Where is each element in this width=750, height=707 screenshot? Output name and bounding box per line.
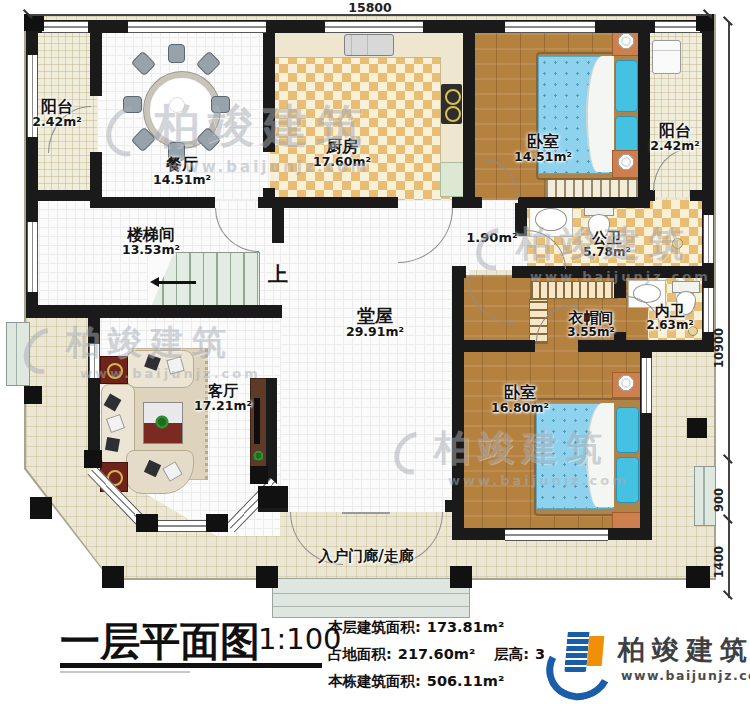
room-label-hall: 堂屋 29.91m²	[325, 306, 425, 340]
kitchen-cabinet	[440, 162, 464, 197]
room-name: 阳台	[659, 122, 691, 139]
dimension-right-main: 10900	[712, 298, 726, 368]
column	[102, 566, 124, 588]
room-area: 29.91m²	[346, 325, 404, 339]
column	[24, 386, 42, 404]
room-area: 2.63m²	[646, 319, 693, 333]
bay-post	[250, 466, 268, 484]
brand-logo: 柏竣建筑 www.baijunjz.com	[544, 624, 744, 704]
column	[30, 497, 52, 519]
room-name: 入户门廊/走廊	[318, 548, 413, 564]
dimension-line-right	[728, 22, 730, 598]
column	[256, 566, 278, 588]
window	[703, 215, 714, 263]
bath-sink	[535, 208, 567, 231]
stove-burner	[445, 89, 461, 105]
title-underline-light	[60, 671, 190, 673]
window	[641, 358, 652, 413]
brand-name: 柏竣建筑	[618, 632, 750, 668]
window	[325, 21, 423, 33]
window	[27, 222, 38, 292]
room-area: 14.51m²	[514, 150, 572, 164]
bedroom1-closet	[545, 178, 642, 199]
stairs-up-text: 上	[268, 264, 288, 286]
side-table-lamp	[107, 363, 123, 379]
info-value: 506.11m²	[427, 673, 504, 689]
window	[505, 529, 608, 541]
wall-cloak-privbath	[614, 278, 626, 298]
wall-balconyR-bottom	[648, 190, 655, 201]
room-area: 5.78m²	[583, 246, 630, 260]
dining-chair	[123, 96, 142, 113]
wall-bedroom1-bottom	[472, 197, 482, 208]
room-area: 3.55m²	[567, 326, 614, 340]
window	[89, 344, 100, 378]
info-footprint-storey: 占地面积:217.60m² 层高:3	[328, 645, 545, 664]
info-total-area: 本栋建筑面积:506.11m²	[328, 672, 504, 691]
wall-kitchen-bottom	[282, 197, 398, 208]
room-area: 2.42m²	[650, 139, 699, 153]
dining-table-center	[169, 97, 185, 113]
dimension-top: 15800	[330, 0, 410, 15]
room-name: 厨房	[326, 138, 358, 155]
wall-cloak-bottom	[464, 340, 535, 352]
wall-bedroom1-bottom	[518, 197, 650, 208]
info-floor-area: 本层建筑面积:173.81m²	[328, 618, 504, 637]
room-label-kitchen: 厨房 17.60m²	[292, 138, 392, 170]
stairs-arrow-head	[150, 277, 159, 287]
dimension-right-mid: 900	[712, 472, 726, 512]
wall-stub	[272, 197, 284, 243]
wall-hall-bottom	[445, 500, 464, 512]
rail-window-left	[6, 322, 30, 386]
room-area: 16.80m²	[491, 401, 549, 415]
sofa-pillow	[105, 437, 120, 452]
info-value: 173.81m²	[427, 619, 504, 635]
column	[258, 486, 288, 508]
entry-door-leaf	[342, 512, 390, 514]
room-name: 楼梯间	[127, 226, 175, 243]
column	[450, 566, 472, 588]
stairs-up-label: 上	[264, 264, 292, 286]
room-label-balcony-left: 阳台 2.42m²	[17, 98, 97, 130]
room-label-bedroom2: 卧室 16.80m²	[470, 384, 570, 416]
room-label-living: 客厅 17.21m²	[173, 383, 273, 414]
room-name: 阳台	[41, 98, 73, 115]
entry-steps	[272, 578, 470, 618]
bedroom2-blanket	[586, 403, 614, 507]
wall-bedroom1-balconyR	[638, 20, 650, 197]
room-name: 公卫	[592, 230, 622, 246]
room-name: 卧室	[504, 384, 536, 401]
title-underline	[60, 663, 322, 668]
tv-plant	[253, 450, 264, 461]
room-area: 17.60m²	[313, 155, 371, 169]
wall-dining-kitchen	[263, 20, 275, 152]
window	[655, 21, 700, 33]
brand-website: www.baijunjz.com	[621, 668, 750, 683]
room-label-public-bath: 公卫 5.78m²	[557, 230, 657, 260]
column	[687, 418, 707, 438]
room-label-dining: 餐厅 14.51m²	[132, 156, 232, 188]
wall-dining-bottom	[90, 197, 215, 208]
bedroom1-pillow	[615, 60, 638, 112]
column	[24, 14, 44, 31]
info-label: 本栋建筑面积:	[328, 673, 421, 689]
info-label: 层高:	[494, 646, 529, 662]
window	[128, 21, 266, 33]
room-area: 17.21m²	[194, 399, 252, 413]
room-label-cloakroom: 衣帽间 3.55m²	[541, 310, 641, 340]
room-name: 客厅	[208, 383, 238, 399]
cloakroom-shelf-top	[530, 281, 618, 299]
window	[505, 21, 595, 33]
column	[686, 566, 710, 588]
room-name: 内卫	[655, 303, 685, 319]
stove-burner	[445, 106, 461, 122]
room-area: 14.51m²	[153, 173, 211, 187]
room-area: 2.42m²	[32, 115, 81, 129]
dining-chair	[211, 96, 230, 113]
washing-machine	[652, 40, 681, 74]
room-label-stairwell: 楼梯间 13.53m²	[101, 226, 201, 258]
bay-post	[84, 450, 102, 468]
info-value: 217.60m²	[398, 646, 475, 662]
room-name: 餐厅	[166, 156, 198, 173]
wall-hall-bedroom2	[452, 266, 464, 540]
wall-living-left	[88, 312, 100, 462]
bedroom2-pillow	[616, 407, 639, 453]
room-name: 卧室	[527, 133, 559, 150]
wall-stairwell-bottom	[26, 305, 282, 318]
dining-chair	[168, 44, 185, 63]
room-label-bedroom1: 卧室 14.51m²	[493, 133, 593, 165]
hall-floor	[280, 200, 470, 512]
room-label-corridor: 1.90m²	[462, 231, 522, 246]
room-area: 1.90m²	[466, 231, 517, 246]
info-label: 本层建筑面积:	[328, 619, 421, 635]
bedroom2-pillow	[616, 457, 639, 503]
nightstand-lamp	[618, 154, 634, 170]
plan-title: 一层平面图	[60, 614, 260, 669]
bay-post	[206, 514, 228, 532]
floor-plan-page: 阳台 2.42m² 餐厅 14.51m² 厨房 17.60m² 卧室 14.51…	[0, 0, 750, 707]
floor-drain	[672, 238, 683, 249]
wall-balconyL-dining	[90, 20, 102, 96]
room-name: 堂屋	[357, 306, 393, 325]
nightstand-lamp	[618, 375, 634, 391]
kitchen-sink	[344, 34, 394, 56]
wall-kitchen-bedroom1	[463, 20, 475, 206]
stairs-direction-arrow	[158, 281, 196, 284]
coffee-table-plant	[154, 414, 170, 430]
window	[42, 21, 88, 33]
brand-logo-building-orange-icon	[587, 636, 605, 666]
bay-window-bottom	[156, 520, 210, 532]
room-label-porch: 入户门廊/走廊	[266, 548, 466, 564]
room-label-balcony-right: 阳台 2.42m²	[635, 122, 715, 154]
bay-post	[136, 514, 158, 532]
dimension-right-low: 1400	[712, 526, 726, 578]
room-area: 13.53m²	[122, 243, 180, 257]
nightstand-lamp	[618, 33, 634, 49]
room-name: 衣帽间	[569, 310, 614, 326]
info-label: 占地面积:	[328, 646, 392, 662]
